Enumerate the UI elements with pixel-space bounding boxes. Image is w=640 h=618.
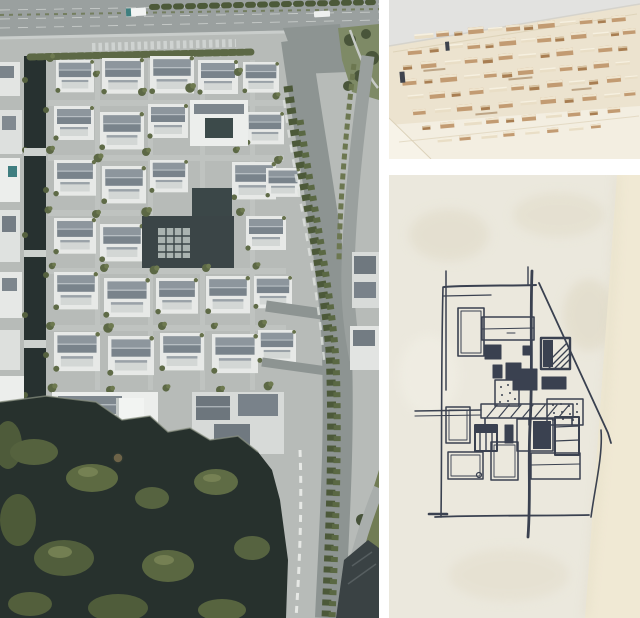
central-courtyard [142, 216, 234, 268]
hall-with-court [190, 100, 248, 146]
bus [314, 11, 330, 18]
aerial-photo [0, 0, 379, 618]
water-court [192, 188, 232, 216]
truck [126, 7, 146, 16]
architecture-collage [0, 0, 640, 618]
canal [22, 56, 49, 430]
wooden-model-photo [389, 0, 640, 159]
sketch-panel [389, 175, 640, 618]
navy-block [399, 72, 405, 83]
round-islet [113, 453, 123, 463]
navy-block [445, 42, 450, 51]
concept-sketch [389, 175, 640, 618]
model-photo-panel [389, 0, 640, 159]
aerial-photo-panel [0, 0, 379, 618]
